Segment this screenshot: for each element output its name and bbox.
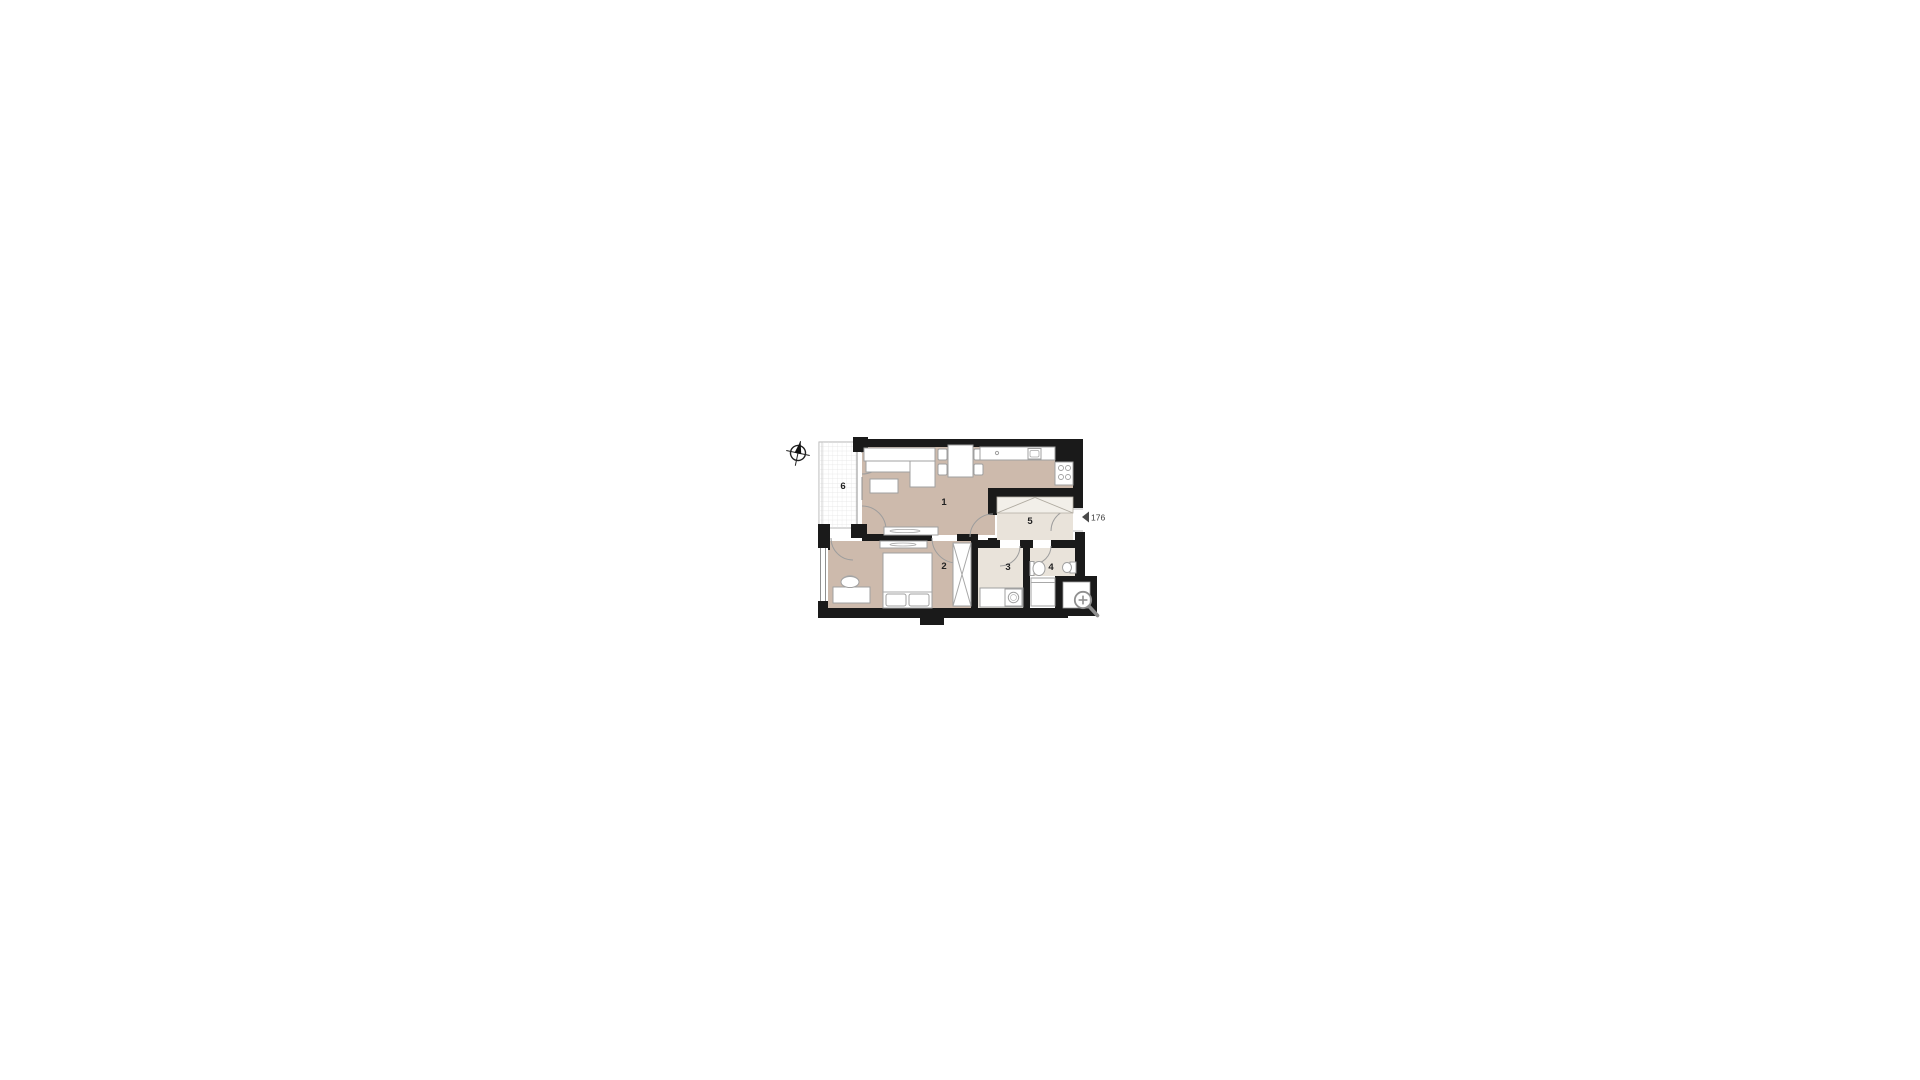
wall-left-upper xyxy=(818,524,830,550)
bedroom-dresser xyxy=(880,541,927,548)
page-canvas: 1 2 3 4 5 6 176 xyxy=(0,0,1920,1080)
sofa-chaise xyxy=(910,461,935,487)
bed-pillow xyxy=(886,594,906,606)
wall-kitchen-shaft xyxy=(1055,443,1073,462)
closet-body xyxy=(997,497,1073,513)
floor-plan-svg: 1 2 3 4 5 6 176 xyxy=(0,0,1920,1080)
room-label-2: 2 xyxy=(941,561,946,572)
compass-icon xyxy=(784,438,813,468)
dining-table xyxy=(948,445,973,477)
entrance-arrow-icon xyxy=(1082,512,1089,523)
room-label-4: 4 xyxy=(1048,562,1054,573)
room-label-6: 6 xyxy=(840,481,845,492)
room-label-3: 3 xyxy=(1005,562,1010,573)
unit-number-label: 176 xyxy=(1091,513,1105,523)
loggia-tile-grid xyxy=(819,442,857,528)
stove xyxy=(1055,462,1073,485)
wall-room4-top xyxy=(1051,540,1077,548)
entrance-threshold xyxy=(1073,508,1083,532)
glass-wall xyxy=(857,442,862,535)
wall-hall-left xyxy=(988,488,997,515)
coffee-table xyxy=(870,479,898,493)
wall-doors34 xyxy=(1020,540,1033,548)
desk xyxy=(833,587,870,603)
wall-room3-top xyxy=(977,540,1000,548)
wall-niche-left xyxy=(1055,576,1063,612)
bed-pillow xyxy=(909,594,929,606)
entrance-marker: 176 xyxy=(1082,512,1105,523)
sofa-seat xyxy=(866,461,910,472)
room-label-5: 5 xyxy=(1027,516,1033,527)
washing-machine xyxy=(1005,589,1022,606)
wall-room12-right xyxy=(957,534,978,541)
sofa-back xyxy=(864,448,935,461)
wall-room34-vertical xyxy=(1023,548,1030,610)
wall-closet-top xyxy=(993,488,1073,497)
furniture-room3 xyxy=(980,588,1023,607)
sideboard-living xyxy=(884,527,938,535)
room-label-1: 1 xyxy=(941,497,947,508)
hallway-closet xyxy=(997,497,1073,513)
dining-chair xyxy=(974,464,983,475)
wall-loggia-door-block xyxy=(851,524,867,538)
window-left xyxy=(818,548,828,601)
toilet-bowl xyxy=(1033,562,1045,576)
kitchen-counter xyxy=(980,447,1055,460)
dining-chair xyxy=(938,449,947,460)
wall-room23-vertical xyxy=(971,541,978,608)
wall-right-upper xyxy=(1073,439,1083,508)
dining-chair xyxy=(938,464,947,475)
wall-bottom-pillar xyxy=(920,608,944,625)
wc-sink-bowl xyxy=(1063,563,1072,573)
